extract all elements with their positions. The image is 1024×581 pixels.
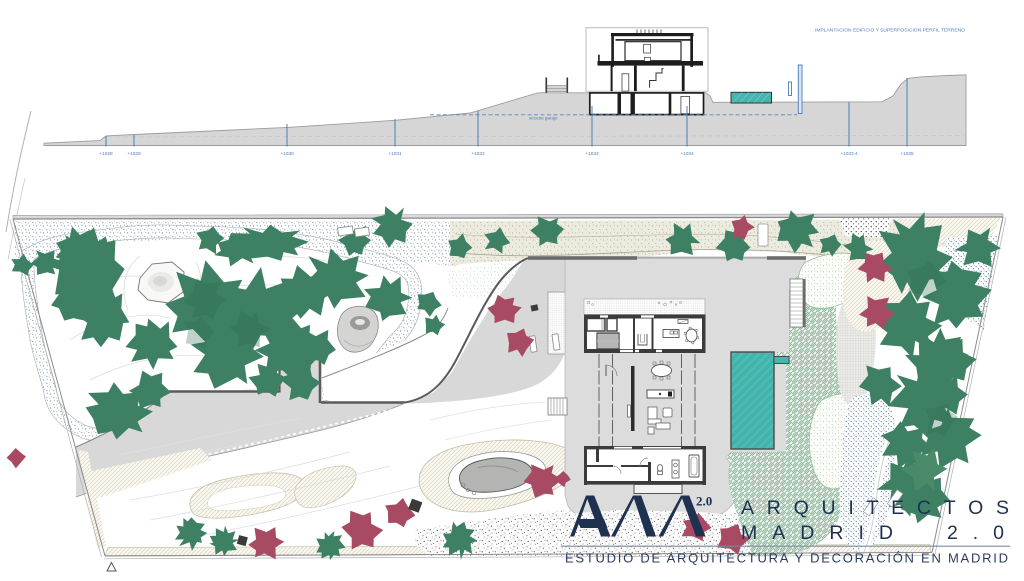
svg-text:2.0: 2.0: [696, 494, 712, 509]
svg-text:+1032: +1032: [471, 151, 485, 157]
svg-text:+1031: +1031: [388, 151, 402, 157]
svg-text:+1034: +1034: [680, 151, 694, 157]
svg-text:acceso garaje: acceso garaje: [529, 116, 558, 121]
svg-text:+1033.4: +1033.4: [840, 151, 858, 157]
svg-text:IMPLANTACION EDIFICIO Y SUPERP: IMPLANTACION EDIFICIO Y SUPERPOSICION PE…: [815, 28, 965, 34]
svg-text:+1028: +1028: [99, 151, 113, 157]
svg-text:ESTUDIO DE ARQUITECTURA Y DECO: ESTUDIO DE ARQUITECTURA Y DECORACIÓN EN …: [565, 551, 1008, 566]
svg-text:2.0: 2.0: [947, 522, 1004, 544]
svg-text:+1035: +1035: [900, 151, 914, 157]
svg-text:+1029: +1029: [127, 151, 141, 157]
svg-text:+1030: +1030: [280, 151, 294, 157]
svg-text:+1033: +1033: [585, 151, 599, 157]
